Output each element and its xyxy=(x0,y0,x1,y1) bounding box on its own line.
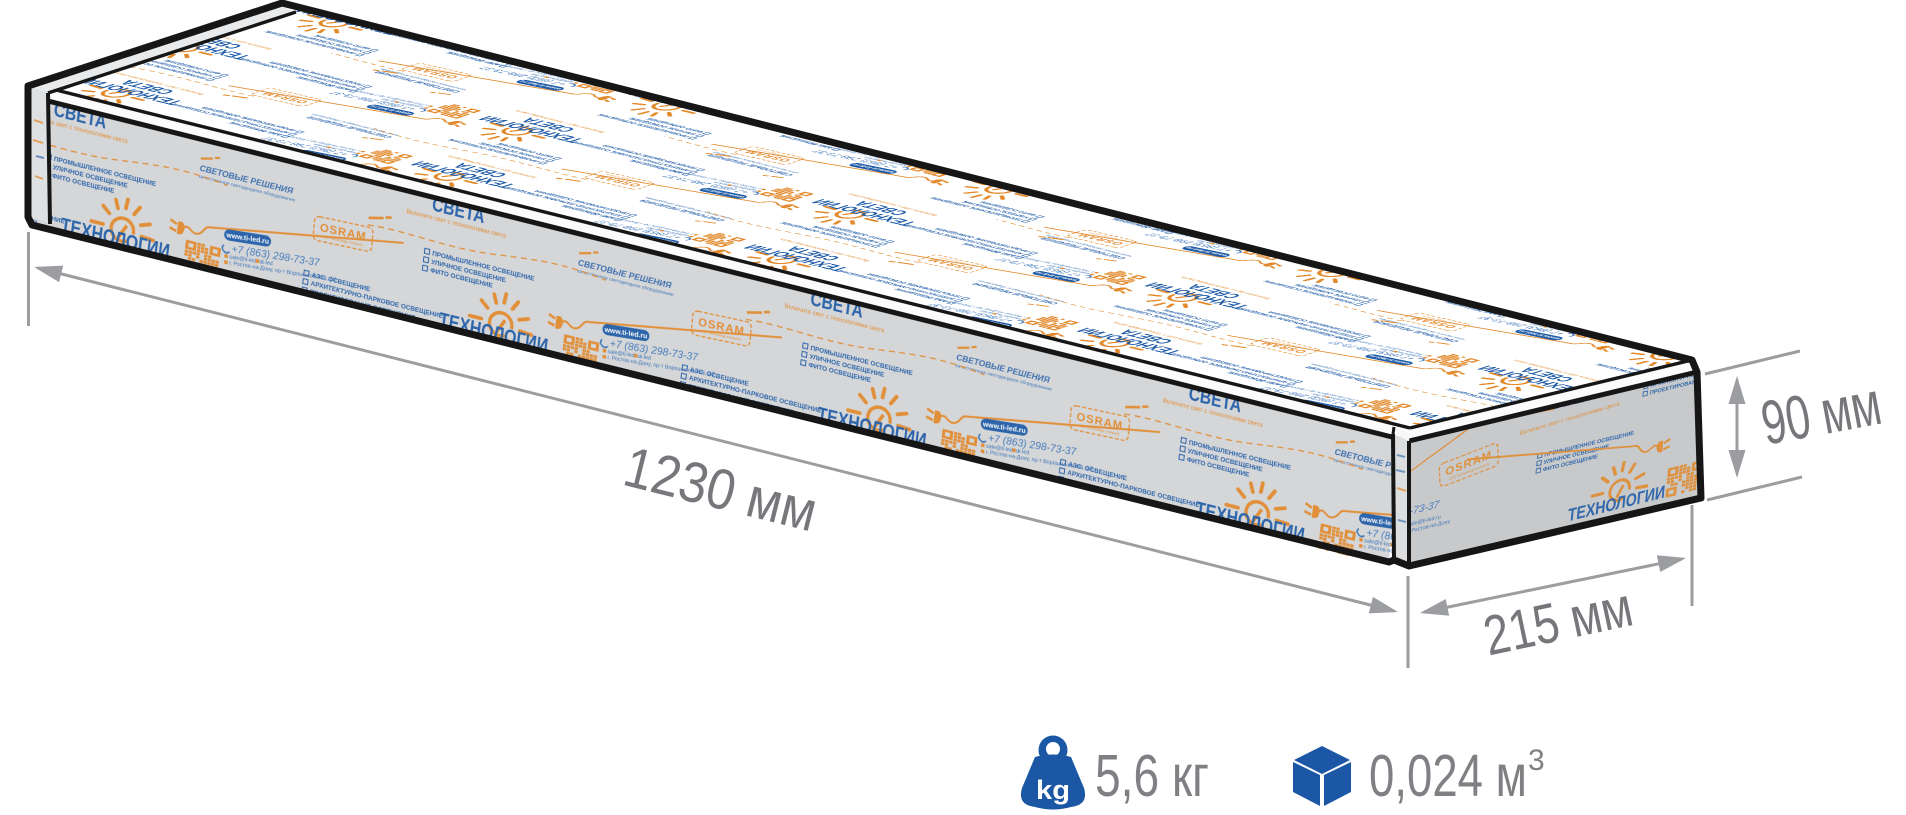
svg-text:0,024 м: 0,024 м xyxy=(1369,743,1527,809)
svg-text:5,6 кг: 5,6 кг xyxy=(1095,743,1209,809)
svg-text:1230 мм: 1230 мм xyxy=(618,435,824,545)
svg-text:kg: kg xyxy=(1036,775,1070,805)
svg-text:90 мм: 90 мм xyxy=(1756,369,1887,459)
svg-text:3: 3 xyxy=(1528,744,1545,777)
svg-text:215 мм: 215 мм xyxy=(1478,575,1638,668)
